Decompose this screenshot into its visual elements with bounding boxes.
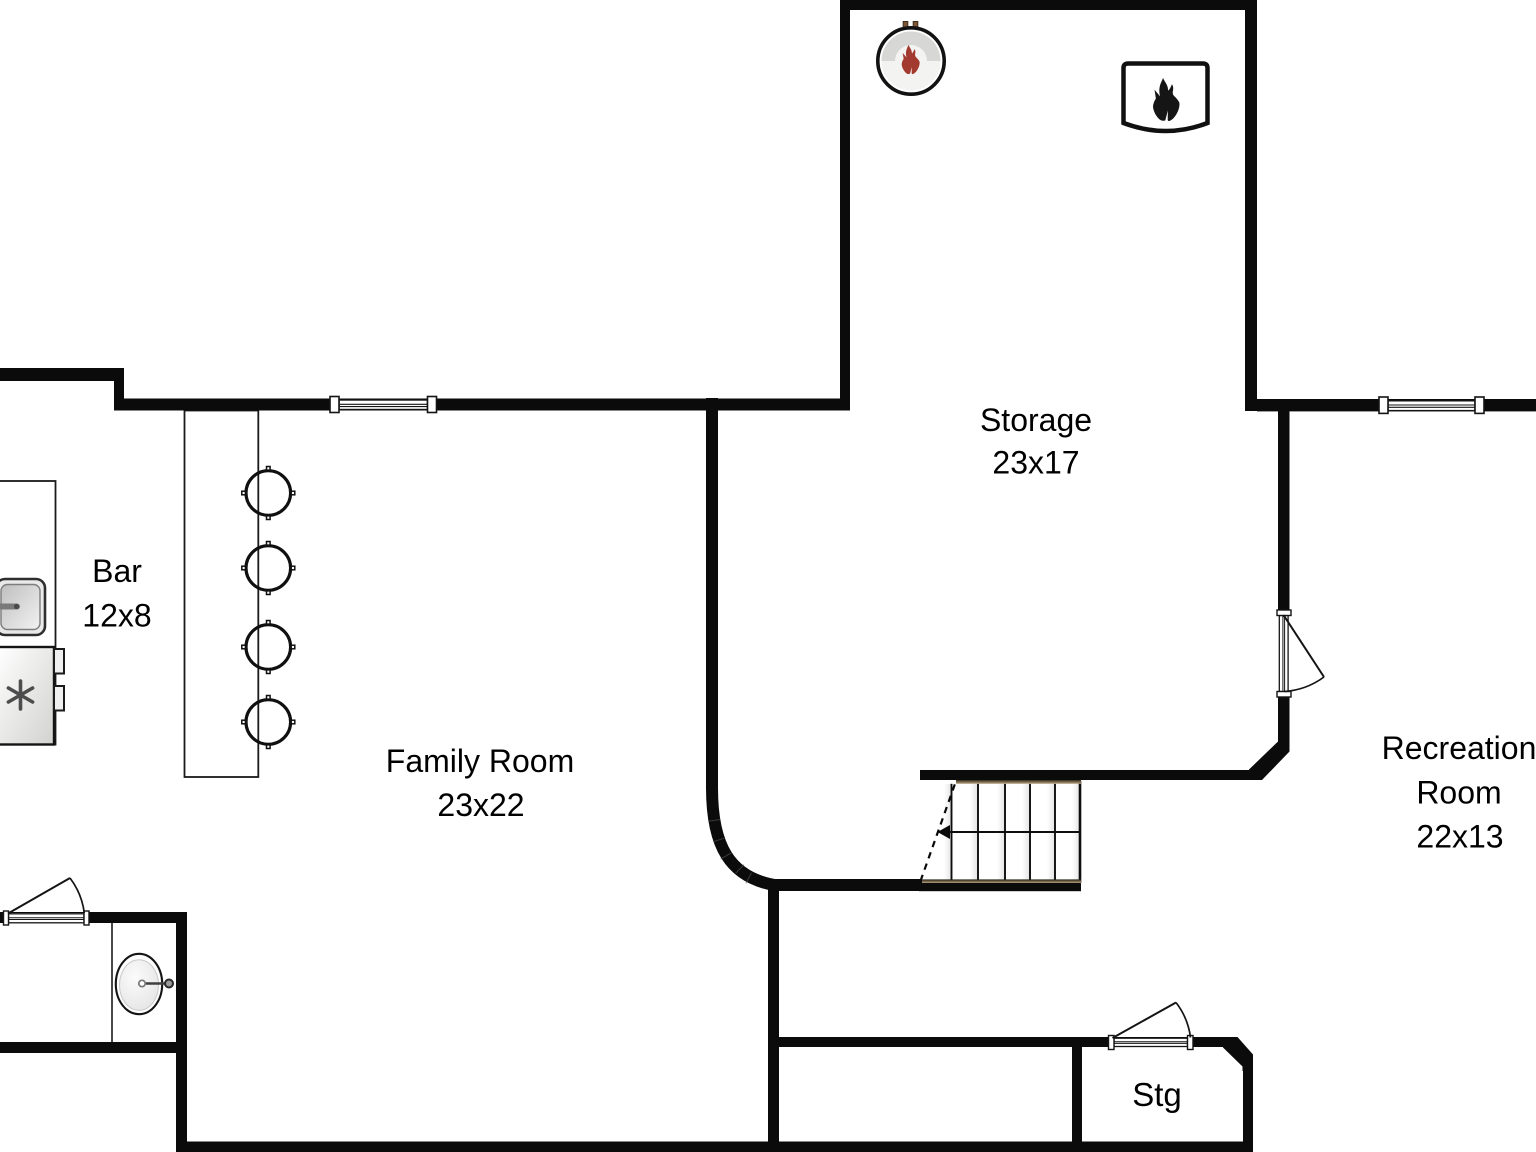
svg-text:Family Room: Family Room [386,743,574,779]
svg-text:Recreation: Recreation [1382,730,1536,766]
svg-text:23x17: 23x17 [992,445,1079,481]
svg-text:12x8: 12x8 [82,598,151,634]
svg-text:Stg: Stg [1132,1076,1182,1113]
svg-text:Bar: Bar [92,553,142,589]
svg-text:23x22: 23x22 [437,787,524,823]
svg-text:Room: Room [1416,775,1501,811]
svg-text:Storage: Storage [980,402,1092,438]
svg-text:22x13: 22x13 [1416,819,1503,855]
